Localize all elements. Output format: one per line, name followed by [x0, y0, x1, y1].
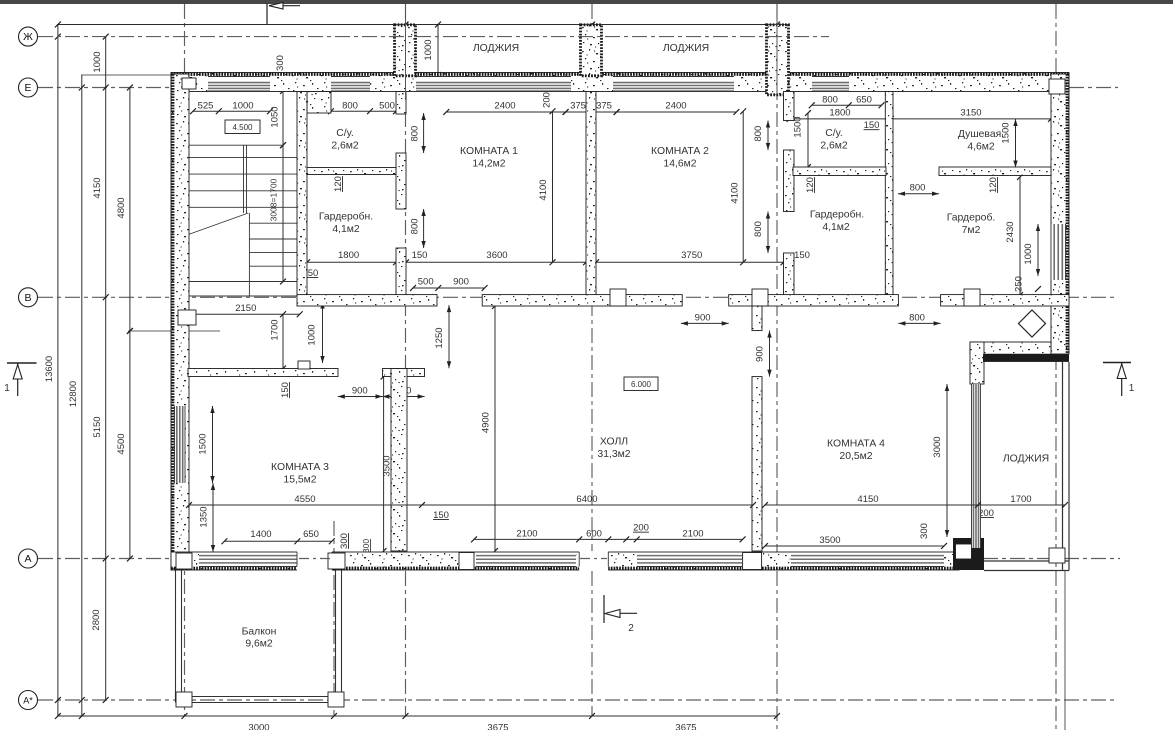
svg-text:525: 525 — [198, 100, 214, 111]
svg-text:150: 150 — [412, 250, 428, 261]
svg-text:КОМНАТА 4: КОМНАТА 4 — [827, 439, 885, 450]
svg-text:2150: 2150 — [235, 303, 256, 314]
svg-text:375: 375 — [596, 101, 612, 112]
svg-text:3675: 3675 — [675, 723, 696, 730]
svg-text:20,5м2: 20,5м2 — [839, 451, 872, 462]
svg-text:2400: 2400 — [494, 101, 515, 112]
svg-text:300: 300 — [919, 523, 930, 539]
svg-text:150: 150 — [864, 120, 880, 131]
svg-text:1700: 1700 — [1010, 494, 1031, 505]
svg-text:13600: 13600 — [44, 356, 55, 382]
svg-text:ХОЛЛ: ХОЛЛ — [600, 437, 628, 448]
svg-text:2100: 2100 — [682, 528, 703, 539]
svg-text:4150: 4150 — [857, 494, 878, 505]
svg-text:650: 650 — [856, 94, 872, 105]
svg-text:Гардеробн.: Гардеробн. — [810, 209, 864, 221]
svg-text:800: 800 — [753, 221, 764, 237]
svg-text:Душевая.: Душевая. — [958, 129, 1004, 140]
svg-text:14,6м2: 14,6м2 — [663, 159, 696, 170]
svg-text:1: 1 — [1129, 383, 1135, 394]
svg-text:900: 900 — [453, 277, 469, 288]
svg-text:120: 120 — [333, 176, 344, 192]
svg-text:ЛОДЖИЯ: ЛОДЖИЯ — [473, 43, 519, 54]
svg-text:1050: 1050 — [270, 106, 281, 127]
svg-text:900: 900 — [695, 312, 711, 323]
svg-text:900: 900 — [755, 346, 766, 362]
svg-text:1: 1 — [4, 383, 10, 394]
svg-text:1000: 1000 — [232, 100, 253, 111]
svg-text:1250: 1250 — [434, 327, 445, 348]
svg-text:КОМНАТА 2: КОМНАТА 2 — [651, 146, 709, 157]
svg-text:4500: 4500 — [116, 433, 127, 454]
svg-text:1000: 1000 — [423, 39, 434, 60]
svg-text:2430: 2430 — [1005, 221, 1016, 242]
svg-text:Ж: Ж — [23, 31, 33, 43]
svg-text:31,3м2: 31,3м2 — [597, 449, 630, 460]
svg-text:1500: 1500 — [198, 433, 209, 454]
svg-text:250: 250 — [1014, 276, 1025, 292]
svg-text:1350: 1350 — [199, 506, 210, 527]
svg-text:200: 200 — [541, 92, 552, 108]
svg-text:6.000: 6.000 — [631, 380, 652, 389]
svg-text:300: 300 — [339, 533, 350, 549]
svg-text:5150: 5150 — [92, 416, 103, 437]
svg-text:1800: 1800 — [829, 108, 850, 119]
svg-text:9,6м2: 9,6м2 — [245, 639, 273, 650]
svg-text:4550: 4550 — [294, 494, 315, 505]
svg-text:6400: 6400 — [576, 494, 597, 505]
svg-text:2,6м2: 2,6м2 — [820, 140, 848, 151]
svg-text:4900: 4900 — [481, 412, 492, 433]
svg-text:Гардероб.: Гардероб. — [947, 212, 996, 224]
svg-text:4,1м2: 4,1м2 — [332, 224, 360, 235]
svg-text:800: 800 — [409, 218, 420, 234]
svg-text:650: 650 — [303, 529, 319, 540]
svg-text:12800: 12800 — [68, 381, 79, 407]
svg-text:150: 150 — [280, 382, 291, 398]
svg-text:3008=1700: 3008=1700 — [269, 178, 279, 221]
svg-text:1000: 1000 — [307, 324, 318, 345]
svg-text:200: 200 — [633, 523, 649, 534]
svg-text:ЛОДЖИЯ: ЛОДЖИЯ — [663, 43, 709, 54]
svg-text:800: 800 — [822, 94, 838, 105]
svg-text:500: 500 — [418, 277, 434, 288]
svg-text:3750: 3750 — [681, 250, 702, 261]
svg-text:ЛОДЖИЯ: ЛОДЖИЯ — [1003, 454, 1049, 465]
svg-text:3675: 3675 — [487, 723, 508, 730]
svg-text:4100: 4100 — [730, 182, 741, 203]
svg-text:1800: 1800 — [338, 250, 359, 261]
svg-text:2: 2 — [628, 623, 634, 634]
svg-text:2800: 2800 — [91, 609, 102, 630]
svg-text:2100: 2100 — [516, 528, 537, 539]
svg-text:375: 375 — [570, 101, 586, 112]
svg-text:В: В — [24, 292, 31, 304]
svg-text:15,5м2: 15,5м2 — [283, 474, 316, 485]
svg-text:4,6м2: 4,6м2 — [967, 141, 995, 152]
svg-text:Гардеробн.: Гардеробн. — [319, 211, 373, 223]
svg-text:600: 600 — [586, 528, 602, 539]
svg-text:800: 800 — [409, 126, 420, 142]
svg-text:4,1м2: 4,1м2 — [822, 222, 850, 233]
svg-text:800: 800 — [909, 312, 925, 323]
svg-text:2400: 2400 — [665, 101, 686, 112]
svg-text:1000: 1000 — [92, 51, 103, 72]
svg-text:КОМНАТА 3: КОМНАТА 3 — [271, 462, 329, 473]
svg-text:3000: 3000 — [932, 436, 943, 457]
svg-text:1400: 1400 — [250, 529, 271, 540]
svg-text:300: 300 — [361, 539, 371, 553]
svg-text:С/у.: С/у. — [825, 128, 842, 139]
svg-text:С/у.: С/у. — [336, 128, 353, 139]
svg-text:120: 120 — [805, 177, 816, 193]
svg-text:120: 120 — [988, 177, 999, 193]
svg-text:А: А — [24, 553, 31, 565]
svg-text:4800: 4800 — [116, 197, 127, 218]
svg-text:14,2м2: 14,2м2 — [472, 159, 505, 170]
svg-text:Балкон: Балкон — [242, 626, 277, 637]
svg-text:3000: 3000 — [248, 723, 269, 730]
svg-text:150: 150 — [794, 250, 810, 261]
svg-text:7м2: 7м2 — [962, 225, 981, 236]
svg-text:300: 300 — [275, 55, 286, 71]
svg-text:3600: 3600 — [486, 250, 507, 261]
svg-text:150: 150 — [433, 510, 449, 521]
svg-text:3150: 3150 — [960, 108, 981, 119]
svg-text:800: 800 — [910, 183, 926, 194]
svg-text:900: 900 — [352, 386, 368, 397]
svg-text:800: 800 — [753, 126, 764, 142]
svg-text:500: 500 — [379, 100, 395, 111]
svg-text:А*: А* — [23, 696, 33, 706]
svg-text:3500: 3500 — [819, 535, 840, 546]
svg-text:4150: 4150 — [92, 177, 103, 198]
svg-text:Е: Е — [24, 82, 31, 94]
svg-text:1700: 1700 — [270, 319, 281, 340]
svg-text:КОМНАТА 1: КОМНАТА 1 — [460, 146, 518, 157]
svg-text:2,6м2: 2,6м2 — [331, 140, 359, 151]
svg-text:800: 800 — [342, 100, 358, 111]
svg-text:1000: 1000 — [1023, 243, 1034, 264]
svg-text:4.500: 4.500 — [232, 123, 253, 132]
svg-text:4100: 4100 — [538, 179, 549, 200]
